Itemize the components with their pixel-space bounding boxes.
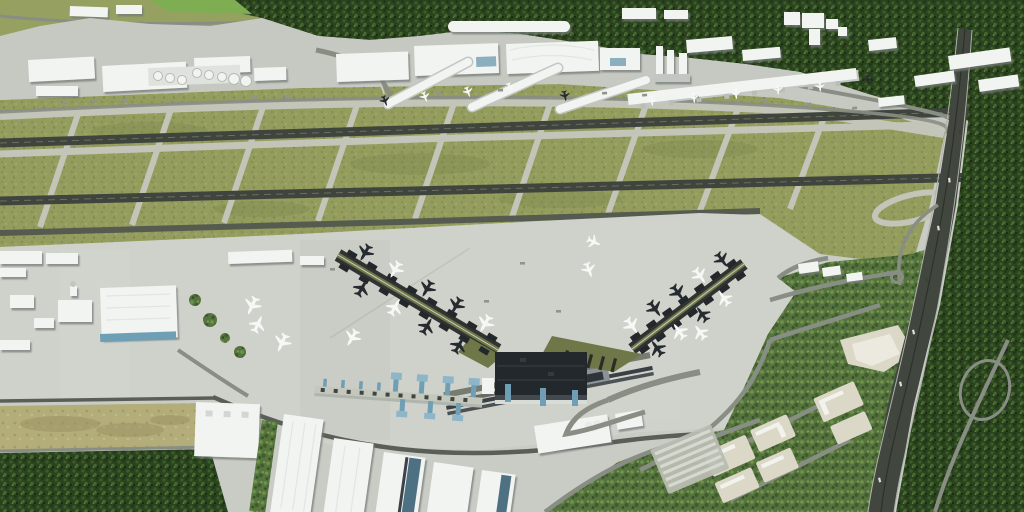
elongated-landside-building [448, 21, 570, 32]
office-tower [656, 46, 663, 74]
terminal3-main-building [482, 352, 587, 404]
southwest-strips [0, 398, 228, 512]
airport-aerial-render [0, 0, 1024, 512]
forest-southwest [0, 449, 228, 512]
control-tower [70, 286, 77, 296]
hotel-cluster [784, 12, 800, 25]
fuel-tank-farm [148, 65, 252, 87]
aerial-scene [0, 0, 1024, 512]
